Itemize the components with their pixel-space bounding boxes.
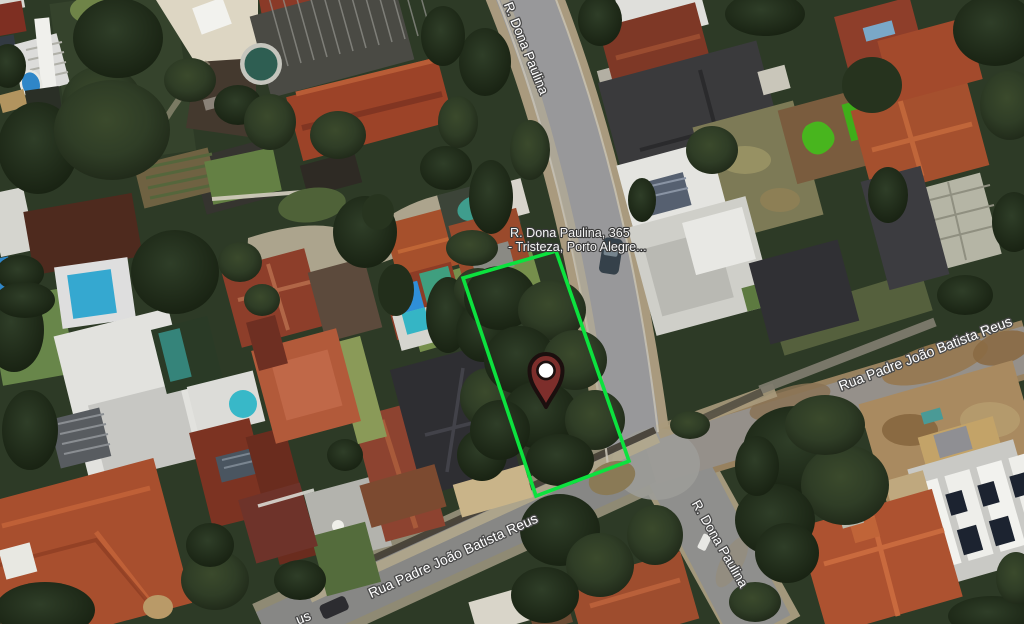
- svg-text:R. Dona Paulina, 365: R. Dona Paulina, 365: [510, 226, 630, 240]
- svg-text:- Tristeza, Porto Alegre...: - Tristeza, Porto Alegre...: [508, 240, 647, 254]
